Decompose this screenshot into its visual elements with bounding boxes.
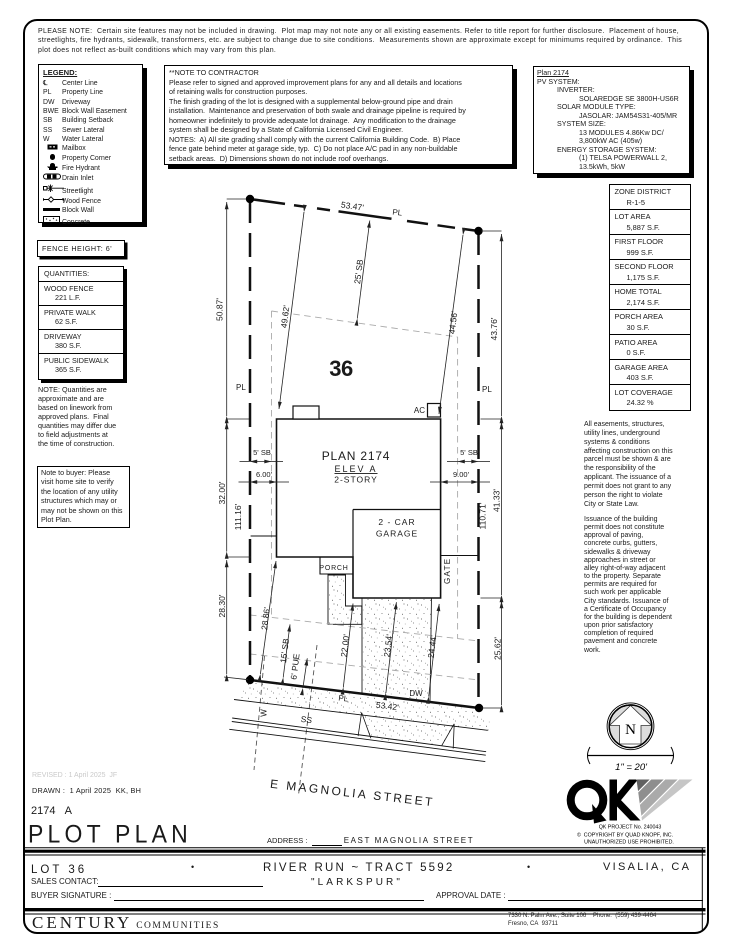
svg-text:111.16': 111.16': [233, 503, 243, 530]
svg-text:44.56': 44.56': [447, 310, 460, 334]
svg-text:ELEV A: ELEV A: [334, 464, 377, 474]
svg-text:28.86': 28.86': [259, 606, 272, 630]
svg-text:22.00': 22.00': [339, 633, 352, 657]
svg-text:GARAGE: GARAGE: [376, 529, 418, 539]
svg-text:25' SB: 25' SB: [352, 258, 365, 284]
svg-text:QK PROJECT No. 240043: QK PROJECT No. 240043: [599, 825, 662, 831]
svg-text:24.44': 24.44': [426, 634, 439, 658]
svg-text:5' SB: 5' SB: [460, 448, 478, 457]
svg-text:PL: PL: [236, 383, 246, 392]
svg-text:PORCH: PORCH: [319, 565, 348, 572]
svg-text:6.00': 6.00': [256, 470, 273, 479]
svg-text:50.87': 50.87': [215, 298, 225, 321]
svg-text:E MAGNOLIA STREET: E MAGNOLIA STREET: [269, 777, 435, 810]
svg-text:SS: SS: [300, 714, 313, 726]
svg-text:DW: DW: [409, 689, 423, 698]
svg-text:9.00': 9.00': [453, 470, 470, 479]
svg-text:UNAUTHORIZED USE PROHIBITED.: UNAUTHORIZED USE PROHIBITED.: [584, 840, 674, 846]
svg-text:53.47': 53.47': [340, 199, 364, 212]
svg-text:GATE: GATE: [443, 558, 452, 584]
svg-text:PL: PL: [338, 693, 349, 703]
svg-text:2-STORY: 2-STORY: [334, 475, 378, 485]
svg-text:15' SB: 15' SB: [278, 637, 291, 663]
svg-text:AC: AC: [414, 406, 425, 415]
svg-text:32.00': 32.00': [217, 481, 227, 504]
svg-text:© COPYRIGHT BY QUAD KNOPF, IN: © COPYRIGHT BY QUAD KNOPF, INC.: [577, 832, 673, 839]
svg-text:110.71': 110.71': [478, 502, 488, 529]
svg-text:W: W: [260, 709, 269, 717]
svg-text:41.33': 41.33': [492, 489, 502, 512]
svg-text:PLAN 2174: PLAN 2174: [322, 449, 391, 463]
svg-text:1" = 20': 1" = 20': [615, 762, 648, 773]
svg-text:5' SB: 5' SB: [253, 448, 271, 457]
svg-text:28.30': 28.30': [217, 594, 227, 617]
svg-text:6' PUE: 6' PUE: [288, 653, 301, 681]
svg-text:36: 36: [329, 356, 353, 381]
svg-text:PL: PL: [482, 385, 492, 394]
svg-text:43.76': 43.76': [489, 317, 499, 340]
svg-text:2 - CAR: 2 - CAR: [378, 517, 415, 527]
svg-text:N: N: [625, 722, 636, 738]
svg-text:25.62': 25.62': [493, 637, 503, 660]
svg-text:PL: PL: [392, 207, 403, 217]
